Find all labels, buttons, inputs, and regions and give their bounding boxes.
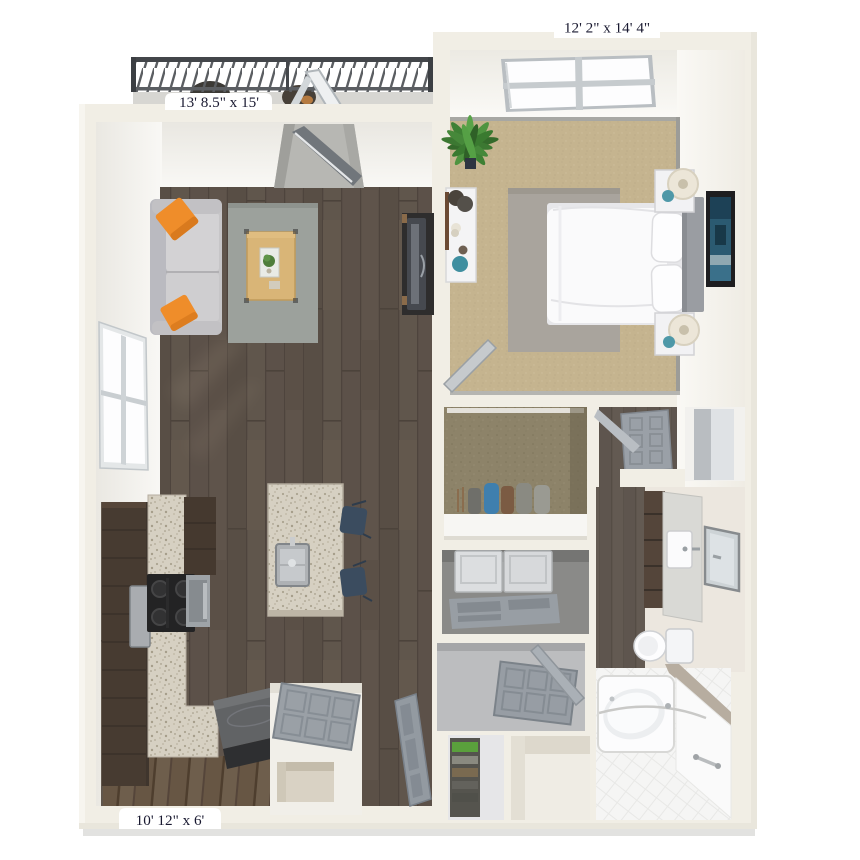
svg-text:12' 2" x 14' 4": 12' 2" x 14' 4"	[564, 20, 650, 37]
svg-text:13' 8.5" x 15': 13' 8.5" x 15'	[179, 94, 259, 111]
svg-text:10' 12" x 6': 10' 12" x 6'	[136, 812, 205, 829]
